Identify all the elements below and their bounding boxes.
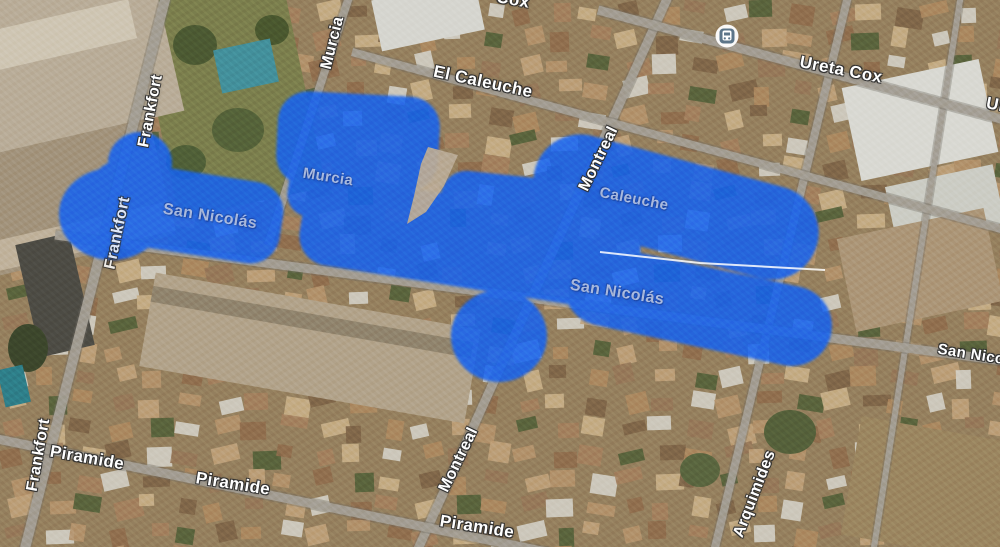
street-label-ur: Ur: [984, 93, 1000, 116]
transit-station-icon[interactable]: [716, 25, 739, 48]
route-line: [600, 252, 825, 270]
satellite-map[interactable]: CoxMurciaEl CaleucheUreta CoxUrFrankfort…: [0, 0, 1000, 547]
